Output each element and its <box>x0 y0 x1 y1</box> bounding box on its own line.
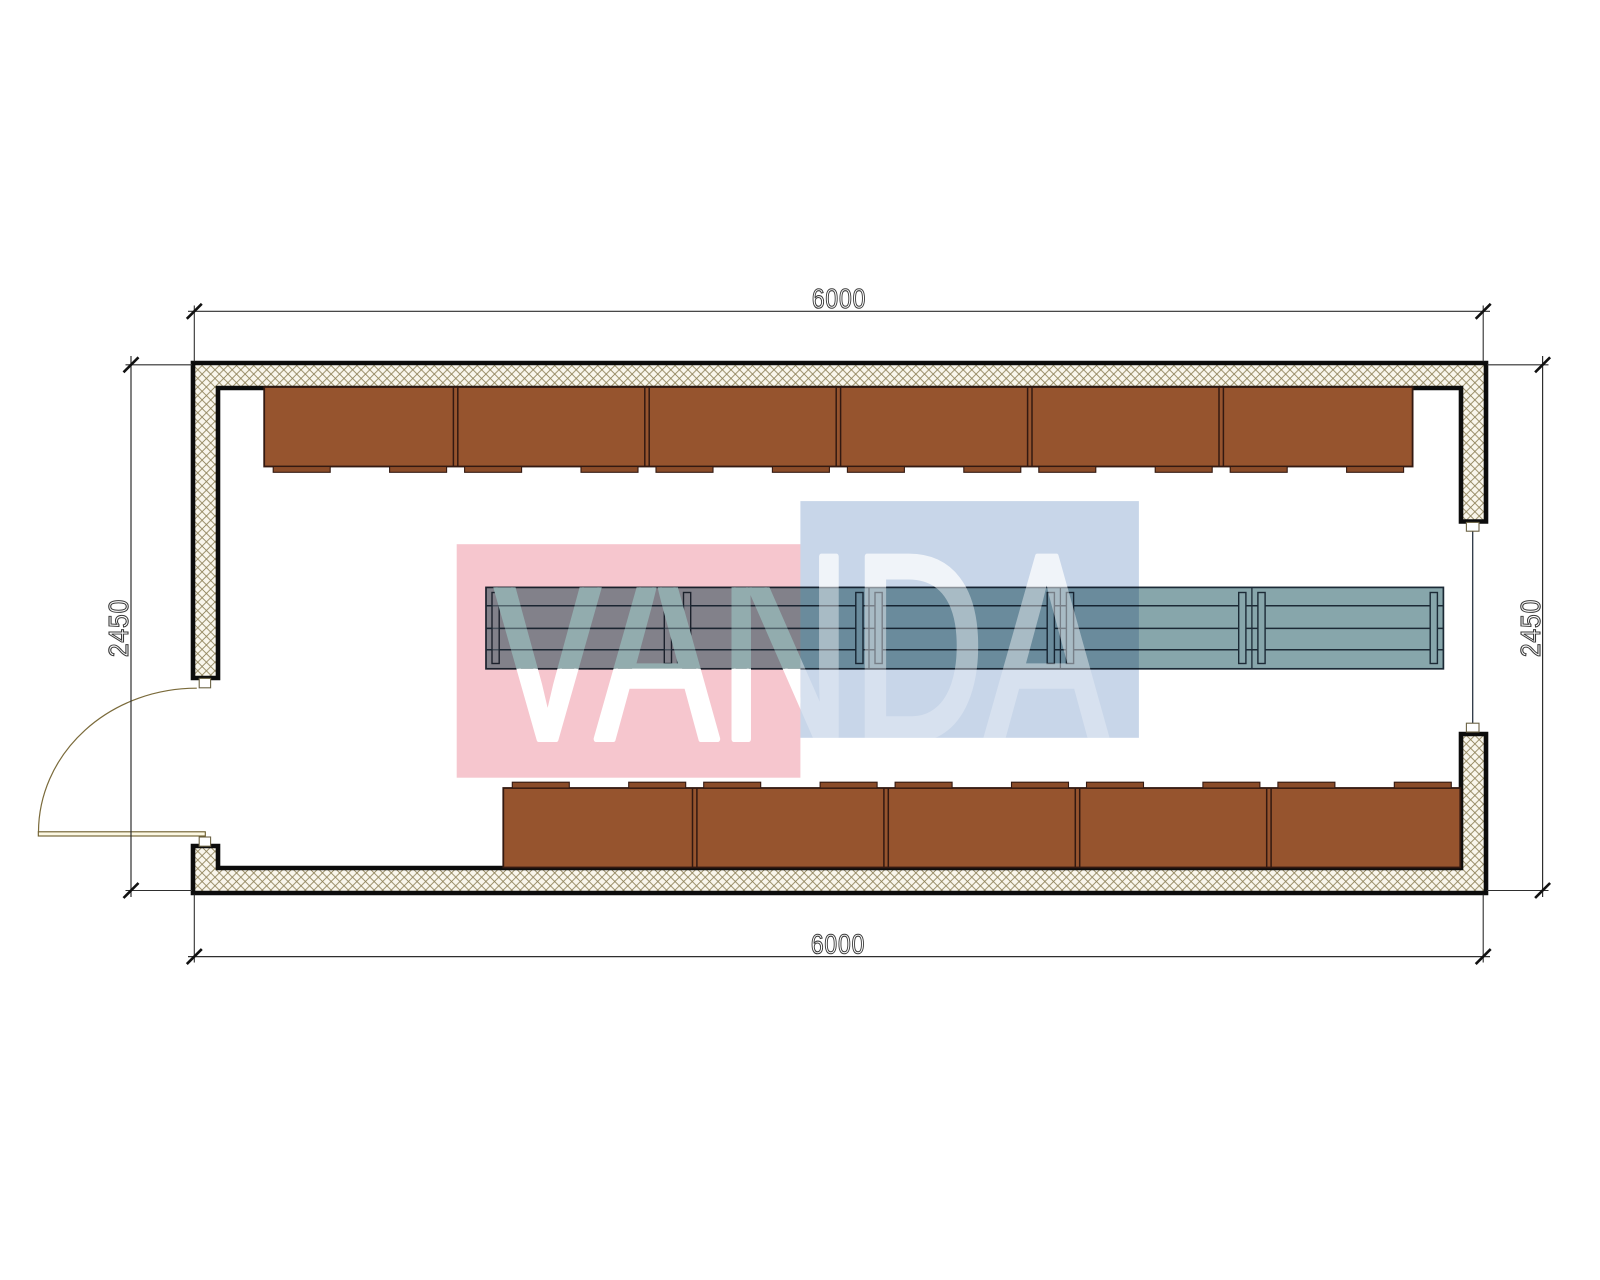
svg-text:2450: 2450 <box>1515 599 1547 657</box>
svg-text:6000: 6000 <box>812 284 866 315</box>
svg-text:6000: 6000 <box>811 929 865 960</box>
svg-text:2450: 2450 <box>103 599 135 657</box>
